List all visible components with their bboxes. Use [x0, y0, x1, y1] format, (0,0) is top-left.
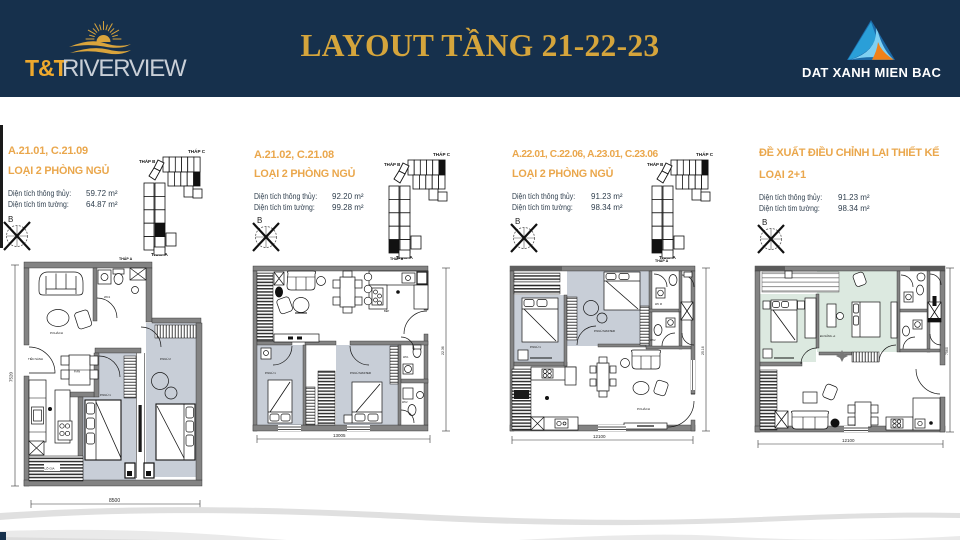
svg-text:TIỀN SẢNH: TIỀN SẢNH: [28, 356, 43, 361]
svg-text:7560: 7560: [945, 347, 949, 355]
svg-text:THÁP C: THÁP C: [696, 151, 714, 157]
svg-text:THÁP A: THÁP A: [655, 258, 669, 263]
svg-text:THÁP B: THÁP B: [139, 159, 155, 164]
svg-text:13005: 13005: [333, 433, 346, 438]
svg-text:P.KHÁCH: P.KHÁCH: [637, 407, 650, 411]
svg-text:P.NGỦ 2: P.NGỦ 2: [160, 356, 171, 361]
svg-text:THÁP C: THÁP C: [433, 151, 451, 157]
svg-text:DAT XANH MIEN BAC: DAT XANH MIEN BAC: [802, 65, 941, 80]
svg-text:WC2: WC2: [650, 339, 656, 342]
svg-text:P.NGỦ 1: P.NGỦ 1: [265, 370, 276, 375]
svg-text:WC2: WC2: [402, 401, 408, 404]
svg-text:P.KHÁCH: P.KHÁCH: [50, 331, 63, 335]
svg-text:THÁP B: THÁP B: [647, 162, 663, 167]
svg-text:12100: 12100: [842, 438, 855, 443]
svg-text:25.16: 25.16: [701, 346, 705, 355]
svg-text:22.36: 22.36: [441, 346, 445, 355]
svg-text:WC1: WC1: [104, 295, 111, 299]
svg-text:P.ĂN: P.ĂN: [74, 370, 80, 374]
svg-text:P.NGỦ 1: P.NGỦ 1: [100, 392, 111, 397]
svg-text:WC M: WC M: [655, 303, 662, 306]
svg-text:P.NGỦ 1: P.NGỦ 1: [530, 344, 541, 349]
svg-text:12100: 12100: [593, 434, 606, 439]
svg-text:THÁP A: THÁP A: [119, 256, 133, 261]
svg-text:ĐA NĂNG +1: ĐA NĂNG +1: [820, 334, 836, 338]
svg-text:WC1: WC1: [403, 356, 409, 359]
svg-text:THÁP C: THÁP C: [188, 148, 206, 154]
svg-text:P.NGỦ MASTER: P.NGỦ MASTER: [594, 328, 615, 333]
svg-text:THÁP B: THÁP B: [384, 162, 400, 167]
svg-text:LÔ GIA: LÔ GIA: [45, 466, 55, 471]
svg-text:THÁP A: THÁP A: [390, 256, 404, 261]
svg-text:7520: 7520: [9, 371, 14, 382]
svg-text:P.NGỦ MASTER: P.NGỦ MASTER: [350, 370, 371, 375]
